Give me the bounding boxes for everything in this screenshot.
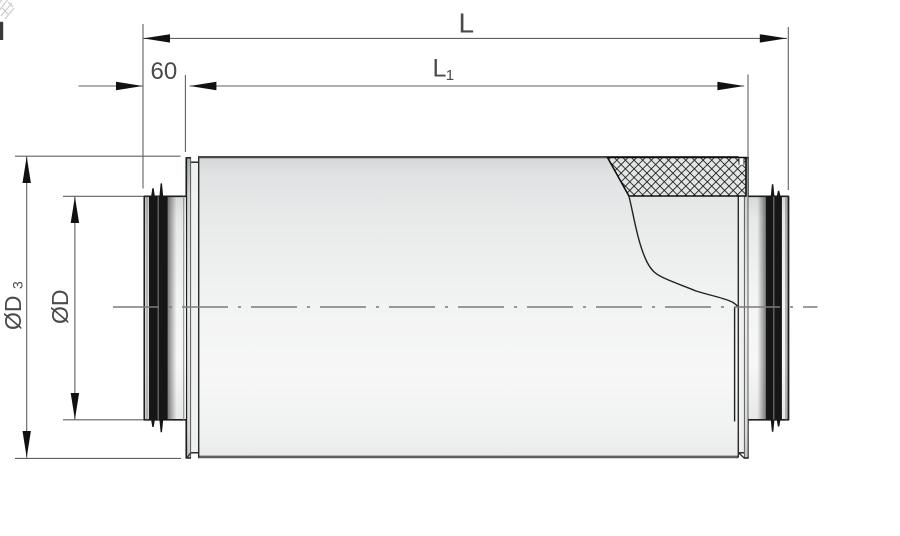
svg-text:ØD: ØD: [0, 296, 26, 331]
svg-text:L: L: [433, 55, 447, 83]
svg-text:L: L: [459, 8, 475, 39]
svg-text:ØD: ØD: [47, 290, 73, 325]
svg-text:1: 1: [446, 67, 454, 84]
svg-text:3: 3: [10, 281, 26, 289]
svg-text:60: 60: [151, 58, 178, 85]
